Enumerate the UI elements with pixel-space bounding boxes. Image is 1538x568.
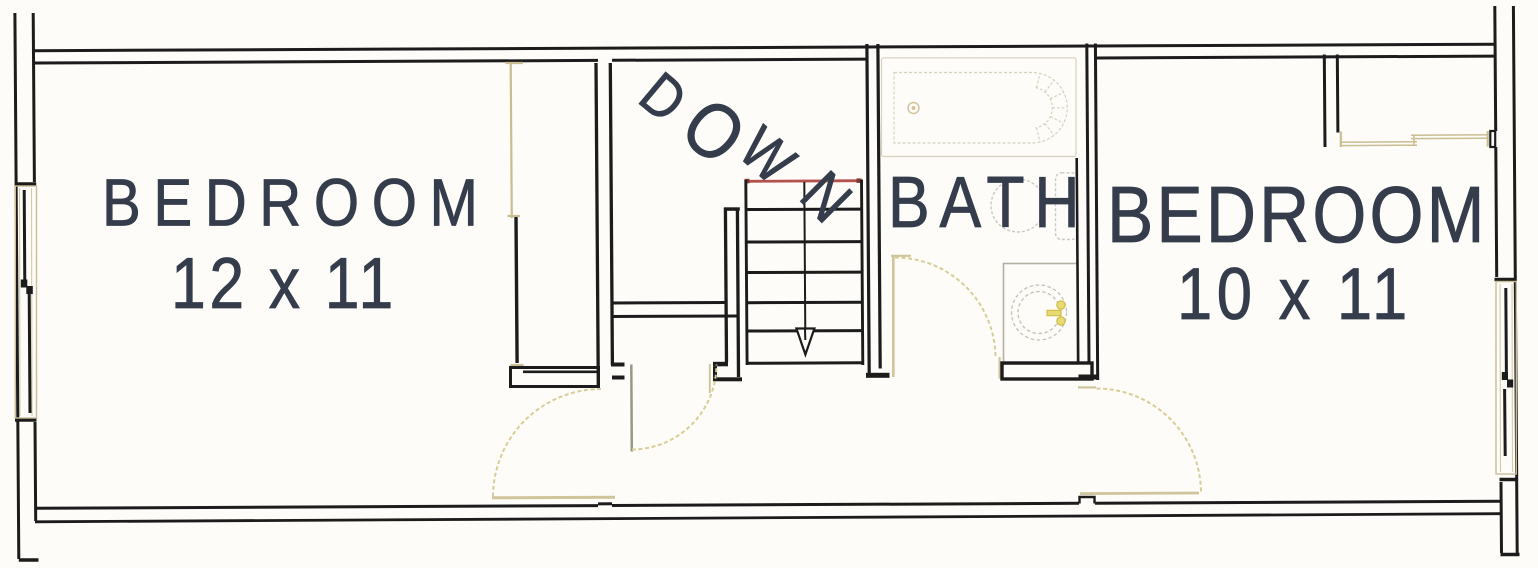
svg-text:BATH: BATH — [888, 163, 1089, 243]
svg-text:12 x 11: 12 x 11 — [171, 244, 397, 324]
svg-text:10 x 11: 10 x 11 — [1177, 254, 1412, 335]
svg-text:BEDROOM: BEDROOM — [1107, 169, 1488, 259]
svg-text:BEDROOM: BEDROOM — [102, 166, 491, 241]
